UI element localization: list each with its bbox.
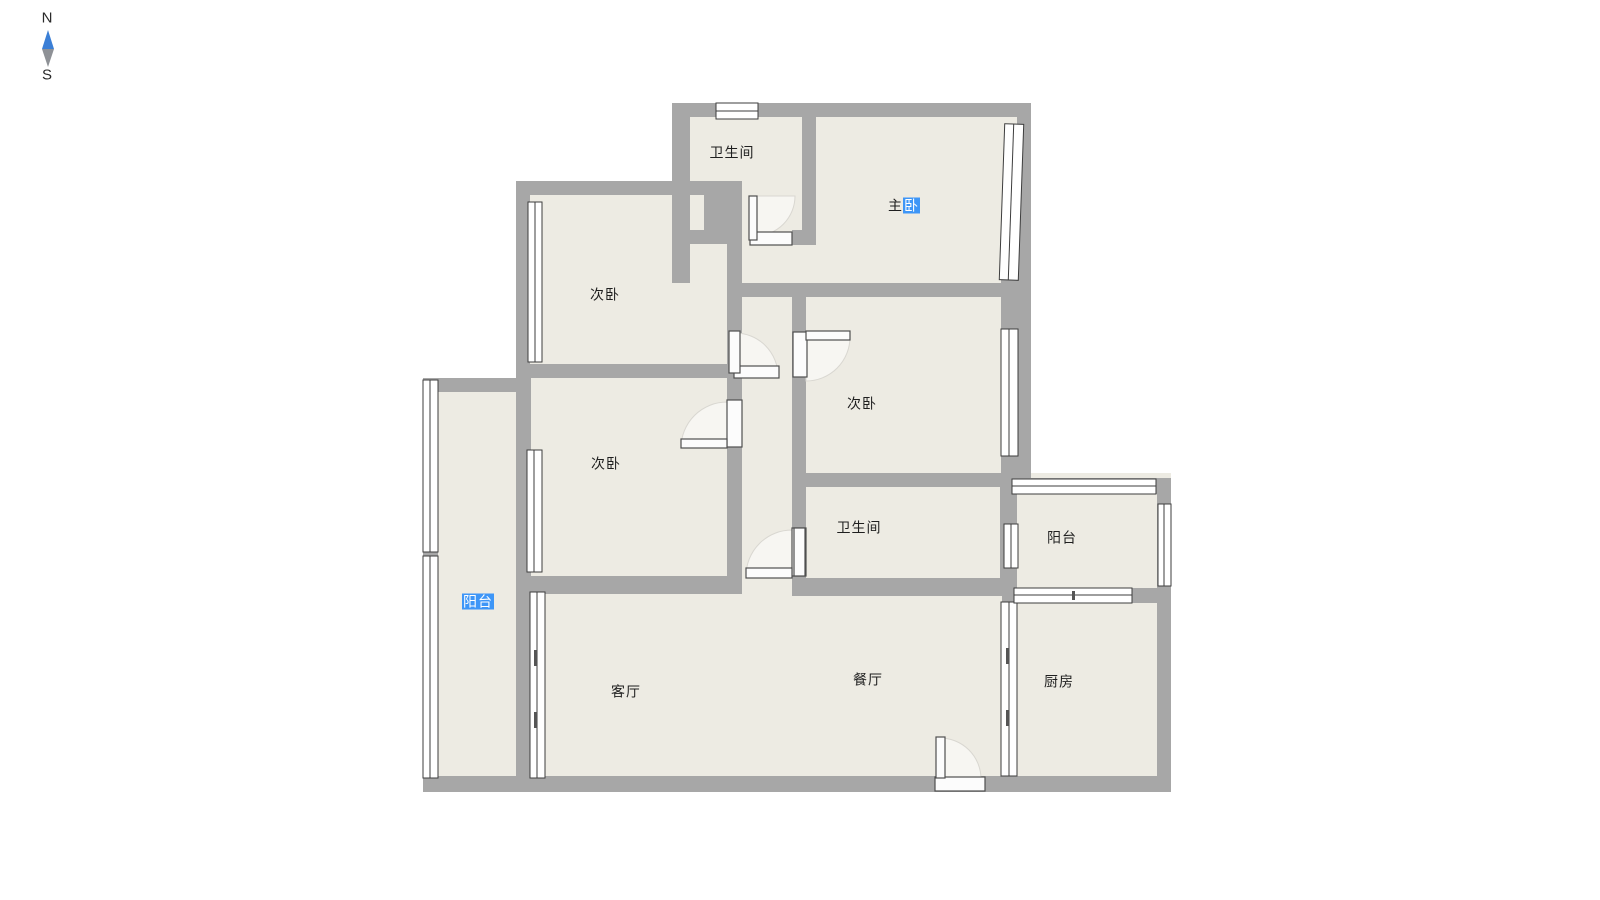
- wall-hall-left: [727, 181, 742, 578]
- room-label-kitchen[interactable]: 厨房: [1044, 673, 1074, 692]
- room-label-master-bedroom[interactable]: 主卧: [888, 197, 920, 216]
- window-bath-top: [716, 103, 758, 119]
- sliding-door-kitchen-left: [1001, 602, 1017, 776]
- wall-bedcr-bottom: [792, 473, 1031, 487]
- wall-bath-bottom: [672, 230, 727, 244]
- compass-south-label: S: [42, 67, 52, 84]
- wall-bathmid-bottom: [792, 578, 1017, 596]
- room-label-balcony-left[interactable]: 阳台: [462, 593, 494, 612]
- wall-kitchen-top-right: [1132, 588, 1157, 603]
- window-balcony-right-small: [1004, 524, 1018, 568]
- window-bedroom-top-left: [528, 202, 542, 362]
- floor-right-block: [1000, 473, 1171, 792]
- sliding-door-balcony-living: [530, 592, 545, 778]
- wall-bedtl-bottom: [516, 364, 742, 378]
- door-threshold-bedroom-center: [793, 332, 807, 377]
- window-balcony-right-top: [1012, 479, 1156, 494]
- door-leaf-entry: [936, 737, 945, 778]
- wall-balcony-left-top: [423, 378, 530, 392]
- door-leaf-bath-mid: [794, 528, 805, 576]
- door-leaf-bedroom-mid-left: [681, 439, 727, 448]
- wall-right-jog-upper: [1001, 278, 1031, 333]
- wall-master-bottom: [727, 283, 1031, 297]
- door-sill-hall: [734, 366, 779, 378]
- room-label-living-room[interactable]: 客厅: [611, 683, 641, 702]
- door-leaf-bedroom-center: [806, 331, 850, 340]
- sliding-door-kitchen-top: [1014, 588, 1132, 603]
- compass-north-label: N: [42, 10, 53, 27]
- room-label-bathroom-mid[interactable]: 卫生间: [837, 519, 882, 538]
- balcony-left-selected-text[interactable]: 阳台: [462, 594, 494, 610]
- wall-bath-master: [802, 117, 816, 230]
- floor-balcony-left: [423, 378, 530, 790]
- wall-bath-master-stub: [792, 230, 816, 245]
- door-leaf-hall: [729, 331, 740, 373]
- window-balcony-right-side: [1158, 504, 1171, 586]
- wall-bedml-bottom: [516, 576, 742, 594]
- room-label-balcony-right[interactable]: 阳台: [1047, 529, 1077, 548]
- window-balcony-left-lower: [423, 556, 438, 778]
- room-label-bedroom-center[interactable]: 次卧: [847, 395, 877, 414]
- master-label-selected-text[interactable]: 卧: [903, 198, 920, 214]
- compass-south-triangle: [42, 49, 54, 67]
- door-sill-bath-mid: [746, 568, 792, 578]
- master-label-normal-text[interactable]: 主: [888, 198, 903, 214]
- floorplan-canvas: N S 卫生间 主卧 次卧 次卧 次卧 卫生间 阳台 阳台 客厅 餐厅 厨房: [0, 0, 1600, 900]
- compass-arrow-icon: [42, 30, 54, 67]
- window-bedroom-center: [1001, 329, 1018, 456]
- room-label-bedroom-mid-left[interactable]: 次卧: [591, 455, 621, 474]
- door-threshold-entry: [935, 777, 985, 791]
- compass-north-triangle: [42, 30, 54, 49]
- room-label-bedroom-top-left[interactable]: 次卧: [590, 286, 620, 305]
- door-leaf-bath-top: [749, 196, 757, 240]
- floorplan-drawing: [0, 0, 1600, 900]
- window-balcony-bedml: [527, 450, 542, 572]
- window-balcony-left-upper: [423, 380, 438, 552]
- room-label-dining-room[interactable]: 餐厅: [853, 671, 883, 690]
- room-label-bathroom-top[interactable]: 卫生间: [710, 144, 755, 163]
- wall-bedtl-top: [516, 181, 704, 195]
- door-threshold-bedroom-mid-left: [727, 400, 742, 447]
